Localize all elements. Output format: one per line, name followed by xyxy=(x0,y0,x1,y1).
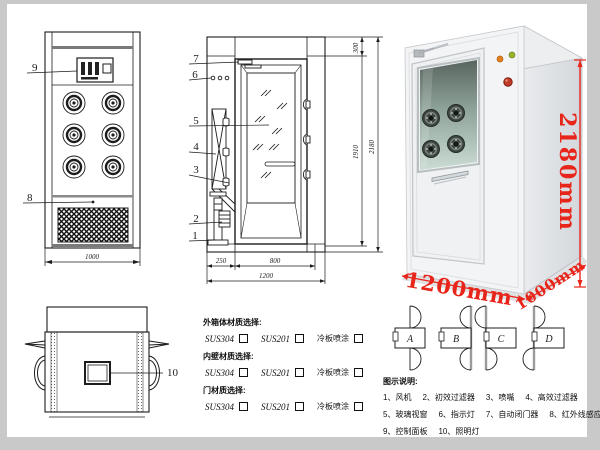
emergency-button[interactable] xyxy=(504,78,512,86)
svg-text:D: D xyxy=(544,334,553,345)
material-option-label: SUS201 xyxy=(261,368,290,378)
ceiling-lamp-symbol xyxy=(85,362,110,384)
material-option-label: SUS304 xyxy=(205,368,234,378)
door-config-c[interactable]: C xyxy=(475,306,516,370)
material-checkbox[interactable] xyxy=(239,368,248,377)
cabinet-door xyxy=(412,48,484,264)
legend-row: 5、玻璃视窗 6、指示灯 7、自动闭门器 8、红外线感应器 xyxy=(383,409,591,420)
product-photo: 2180mm 1200mm 1000mm xyxy=(390,8,595,310)
material-checkbox[interactable] xyxy=(354,368,363,377)
svg-text:2180: 2180 xyxy=(368,140,376,155)
material-checkbox[interactable] xyxy=(295,334,304,343)
legend-item: 8、红外线感应器 xyxy=(549,409,600,420)
legend-item: 6、指示灯 xyxy=(438,409,474,420)
material-option-label: SUS201 xyxy=(261,402,290,412)
material-group-cabinet: 外箱体材质选择: SUS304 SUS201 冷板喷涂 xyxy=(195,317,385,344)
material-group-inner-wall: 内壁材质选择: SUS304 SUS201 冷板喷涂 xyxy=(195,351,385,378)
material-option: SUS304 xyxy=(205,368,248,378)
material-checkbox[interactable] xyxy=(295,402,304,411)
door-config-diagram: A B C D xyxy=(385,302,570,374)
legend-row: 1、风机 2、初效过滤器 3、喷嘴 4、高效过滤器 xyxy=(383,392,591,403)
legend-item: 7、自动闭门器 xyxy=(486,409,538,420)
material-option-label: SUS304 xyxy=(205,334,234,344)
svg-text:7: 7 xyxy=(193,53,199,65)
door-config-b[interactable]: B xyxy=(439,306,471,370)
svg-text:1000: 1000 xyxy=(85,253,100,261)
dimension-1000: 1000 xyxy=(45,248,140,266)
material-checkbox[interactable] xyxy=(295,368,304,377)
door-config-a[interactable]: A xyxy=(393,306,425,370)
material-checkbox[interactable] xyxy=(239,402,248,411)
material-option: 冷板喷涂 xyxy=(317,367,363,378)
legend-title: 图示说明: xyxy=(383,376,591,387)
legend-item: 1、风机 xyxy=(383,392,411,403)
material-selection: 外箱体材质选择: SUS304 SUS201 冷板喷涂 内壁材质选择: SUS3… xyxy=(195,310,385,412)
svg-text:3: 3 xyxy=(193,164,199,176)
material-checkbox[interactable] xyxy=(354,402,363,411)
page-background: 9 8 1000 xyxy=(7,4,587,437)
side-view-drawing: 7 6 5 4 3 2 1 300 1910 2180 xyxy=(179,12,399,302)
material-option: SUS304 xyxy=(205,334,248,344)
material-option-label: SUS201 xyxy=(261,334,290,344)
front-bottom-band xyxy=(52,244,133,247)
button-highlight xyxy=(505,79,507,81)
svg-text:1200: 1200 xyxy=(259,272,274,280)
return-air-grille xyxy=(58,208,128,242)
svg-text:10: 10 xyxy=(167,367,179,379)
legend-item: 9、控制面板 xyxy=(383,426,427,437)
legend-item: 5、玻璃视窗 xyxy=(383,409,427,420)
svg-text:800: 800 xyxy=(270,257,281,265)
glass-hatch-marks xyxy=(253,90,287,178)
material-option-label: 冷板喷涂 xyxy=(317,333,349,344)
front-view-drawing: 9 8 1000 xyxy=(19,24,179,269)
svg-text:B: B xyxy=(453,334,459,345)
svg-text:C: C xyxy=(498,334,505,345)
nozzle-grid xyxy=(63,92,124,178)
door-closer-symbol xyxy=(238,60,261,68)
side-door xyxy=(235,59,307,244)
side-right-dimensions: 300 1910 2180 xyxy=(325,37,383,252)
indicator-lights-symbol xyxy=(211,76,229,80)
material-option-label: 冷板喷涂 xyxy=(317,367,349,378)
material-group-title: 内壁材质选择: xyxy=(203,351,385,362)
part-label-8: 8 xyxy=(23,192,94,204)
svg-text:5: 5 xyxy=(193,115,199,127)
material-option: 冷板喷涂 xyxy=(317,333,363,344)
part-label-10: 10 xyxy=(110,367,179,379)
legend-item: 3、喷嘴 xyxy=(486,392,514,403)
material-option: SUS201 xyxy=(261,368,304,378)
svg-text:1910: 1910 xyxy=(352,145,360,160)
right-door-hardware xyxy=(149,341,169,390)
screenshot-root: 9 8 1000 xyxy=(0,0,600,450)
svg-text:8: 8 xyxy=(27,192,33,204)
front-top-band xyxy=(52,46,133,49)
svg-text:300: 300 xyxy=(352,42,360,54)
svg-text:4: 4 xyxy=(193,141,199,153)
material-option: SUS201 xyxy=(261,402,304,412)
left-wall-hatch xyxy=(51,332,57,412)
material-option: SUS304 xyxy=(205,402,248,412)
svg-text:1: 1 xyxy=(192,230,198,242)
material-option-label: SUS304 xyxy=(205,402,234,412)
material-group-title: 外箱体材质选择: xyxy=(203,317,385,328)
door-config-d[interactable]: D xyxy=(523,306,564,370)
material-checkbox[interactable] xyxy=(239,334,248,343)
right-wall-hatch xyxy=(137,332,143,412)
hepa-filter-symbol xyxy=(212,109,235,212)
material-group-door: 门材质选择: SUS304 SUS201 冷板喷涂 xyxy=(195,385,385,412)
top-view-drawing: 10 xyxy=(23,296,198,436)
svg-text:250: 250 xyxy=(216,257,227,265)
svg-text:A: A xyxy=(406,334,414,345)
left-door-hardware xyxy=(25,341,45,390)
material-checkbox[interactable] xyxy=(354,334,363,343)
control-panel xyxy=(77,58,113,82)
svg-text:2180mm: 2180mm xyxy=(554,112,580,232)
legend-row: 9、控制面板 10、照明灯 xyxy=(383,426,591,437)
legend: 图示说明: 1、风机 2、初效过滤器 3、喷嘴 4、高效过滤器 5、玻璃视窗 6… xyxy=(383,376,591,443)
legend-item: 4、高效过滤器 xyxy=(525,392,577,403)
material-option: SUS201 xyxy=(261,334,304,344)
indicator-light-orange xyxy=(497,56,503,62)
indicator-light-green xyxy=(509,52,515,58)
material-option: 冷板喷涂 xyxy=(317,401,363,412)
front-mid-band xyxy=(52,195,133,198)
material-group-title: 门材质选择: xyxy=(203,385,385,396)
legend-item: 10、照明灯 xyxy=(438,426,479,437)
legend-item: 2、初效过滤器 xyxy=(422,392,474,403)
material-option-label: 冷板喷涂 xyxy=(317,401,349,412)
fan-unit-symbol xyxy=(208,192,230,245)
